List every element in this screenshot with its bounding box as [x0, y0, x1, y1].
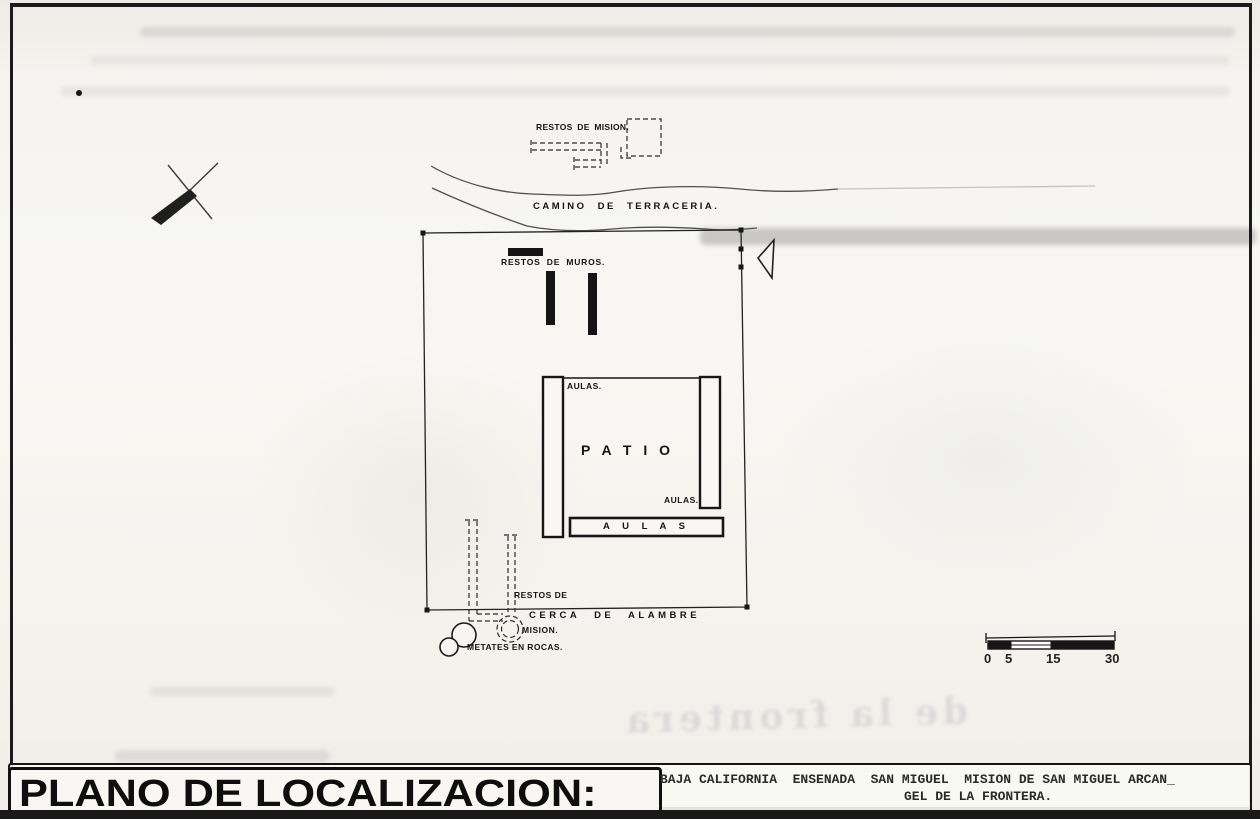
label-metates: METATES EN ROCAS. [467, 643, 563, 652]
location-line1: BAJA CALIFORNIA ENSENADA SAN MIGUEL MISI… [660, 771, 1175, 788]
label-classrooms-top: AULAS. [567, 382, 602, 391]
gate-triangle-icon [758, 240, 774, 278]
label-mission-ruins-south-line2: MISION. [522, 625, 567, 637]
label-mission-ruins-south-line1: RESTOS DE [514, 590, 567, 602]
label-classrooms-block: A U L A S [570, 518, 723, 536]
label-wire-fence: CERCA DE ALAMBRE [529, 611, 700, 621]
classroom-wing-right [700, 377, 720, 508]
scale-tick-15: 15 [1046, 651, 1060, 666]
classroom-wing-left [543, 377, 563, 537]
scale-tick-0: 0 [984, 651, 991, 666]
location-line2: GEL DE LA FRONTERA. [904, 788, 1175, 805]
scale-tick-30: 30 [1105, 651, 1119, 666]
label-dirt-road: CAMINO DE TERRACERIA. [533, 202, 719, 212]
dirt-road-path [431, 166, 1095, 231]
label-mission-ruins-north: RESTOS DE MISION. [536, 123, 629, 132]
scanned-site-plan-page: de la frontera [0, 0, 1260, 819]
scale-bar [986, 631, 1115, 649]
scale-tick-5: 5 [1005, 651, 1012, 666]
north-marker-icon [151, 163, 218, 225]
location-text: BAJA CALIFORNIA ENSENADA SAN MIGUEL MISI… [660, 771, 1175, 805]
scan-edge [0, 810, 1260, 819]
label-wall-remains: RESTOS DE MUROS. [501, 258, 605, 267]
plan-linework [0, 0, 1260, 819]
label-classrooms-right: AULAS. [664, 496, 699, 505]
label-patio: P A T I O [581, 443, 674, 457]
